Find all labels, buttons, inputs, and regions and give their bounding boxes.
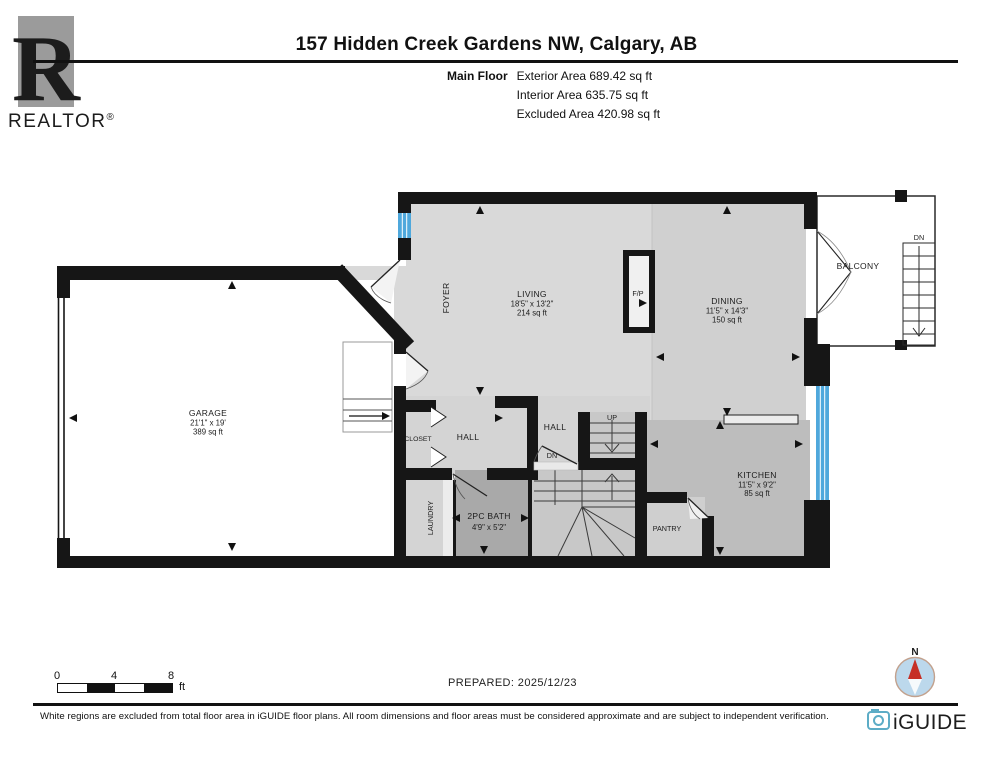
scale-tick-8: 8 — [164, 670, 178, 682]
pantry-label: PANTRY — [653, 524, 682, 533]
living-dims: 18'5" x 13'2" — [511, 300, 554, 309]
compass-icon: N — [888, 642, 944, 702]
balcony-dn-label: DN — [914, 233, 924, 242]
garage-dims: 21'1" x 19' — [190, 419, 226, 428]
garage-label: GARAGE — [189, 408, 227, 418]
floor-label: Main Floor — [447, 67, 508, 123]
garage-area: 389 sq ft — [193, 428, 224, 437]
hall-right-label: HALL — [544, 422, 566, 432]
foyer-label: FOYER — [441, 283, 451, 314]
window-foyer — [398, 213, 411, 238]
scale-unit: ft — [179, 681, 185, 693]
fireplace-label: F/P — [632, 289, 643, 298]
living-area: 214 sq ft — [517, 309, 548, 318]
window-kitchen — [816, 386, 829, 500]
scale-tick-4: 4 — [107, 670, 121, 682]
balcony-label: BALCONY — [837, 261, 880, 271]
kitchen-counter — [724, 415, 798, 424]
prepared-date: PREPARED: 2025/12/23 — [448, 677, 577, 689]
dining-dims: 11'5" x 14'3" — [706, 307, 748, 316]
scale-bar: 0 4 8 ft — [50, 668, 210, 696]
header-rule — [33, 60, 958, 63]
stairs-lower-floor — [532, 462, 635, 560]
registered-mark: ® — [107, 112, 116, 123]
svg-text:REALTOR®: REALTOR® — [8, 111, 115, 132]
interior-area: Interior Area 635.75 sq ft — [517, 86, 660, 105]
disclaimer-text: White regions are excluded from total fl… — [40, 711, 829, 722]
kitchen-area: 85 sq ft — [744, 489, 770, 498]
excluded-area: Excluded Area 420.98 sq ft — [517, 105, 660, 124]
floor-info: Main Floor Exterior Area 689.42 sq ft In… — [447, 67, 660, 123]
dining-area: 150 sq ft — [712, 316, 743, 325]
laundry-label: LAUNDRY — [426, 501, 435, 535]
hall-left-label: HALL — [457, 432, 479, 442]
realtor-logo-word: REALTOR — [8, 111, 107, 132]
footer-rule — [33, 703, 958, 706]
dining-label: DINING — [711, 296, 743, 306]
camera-icon — [868, 709, 889, 729]
iguide-wordmark: iGUIDE — [893, 711, 967, 734]
living-label: LIVING — [517, 289, 547, 299]
iguide-logo: iGUIDE — [866, 707, 986, 737]
up-label: UP — [607, 413, 617, 422]
dn-hall-label: DN — [547, 451, 557, 460]
scale-tick-0: 0 — [50, 670, 64, 682]
exterior-area: Exterior Area 689.42 sq ft — [517, 67, 660, 86]
scale-bar-segments — [57, 683, 173, 693]
balcony-outline — [817, 196, 935, 346]
kitchen-label: KITCHEN — [737, 470, 776, 480]
closet-label: CLOSET — [404, 436, 431, 443]
bath-dims: 4'9" x 5'2" — [472, 523, 506, 532]
bath-label: 2PC BATH — [467, 511, 510, 521]
realtor-logo: R REALTOR® — [6, 8, 136, 138]
floor-areas: Exterior Area 689.42 sq ft Interior Area… — [517, 67, 660, 123]
balcony-wall-stub-top — [895, 190, 907, 202]
page-title: 157 Hidden Creek Gardens NW, Calgary, AB — [0, 34, 993, 56]
compass-north-label: N — [911, 647, 918, 658]
realtor-logo-letter: R — [12, 17, 81, 121]
